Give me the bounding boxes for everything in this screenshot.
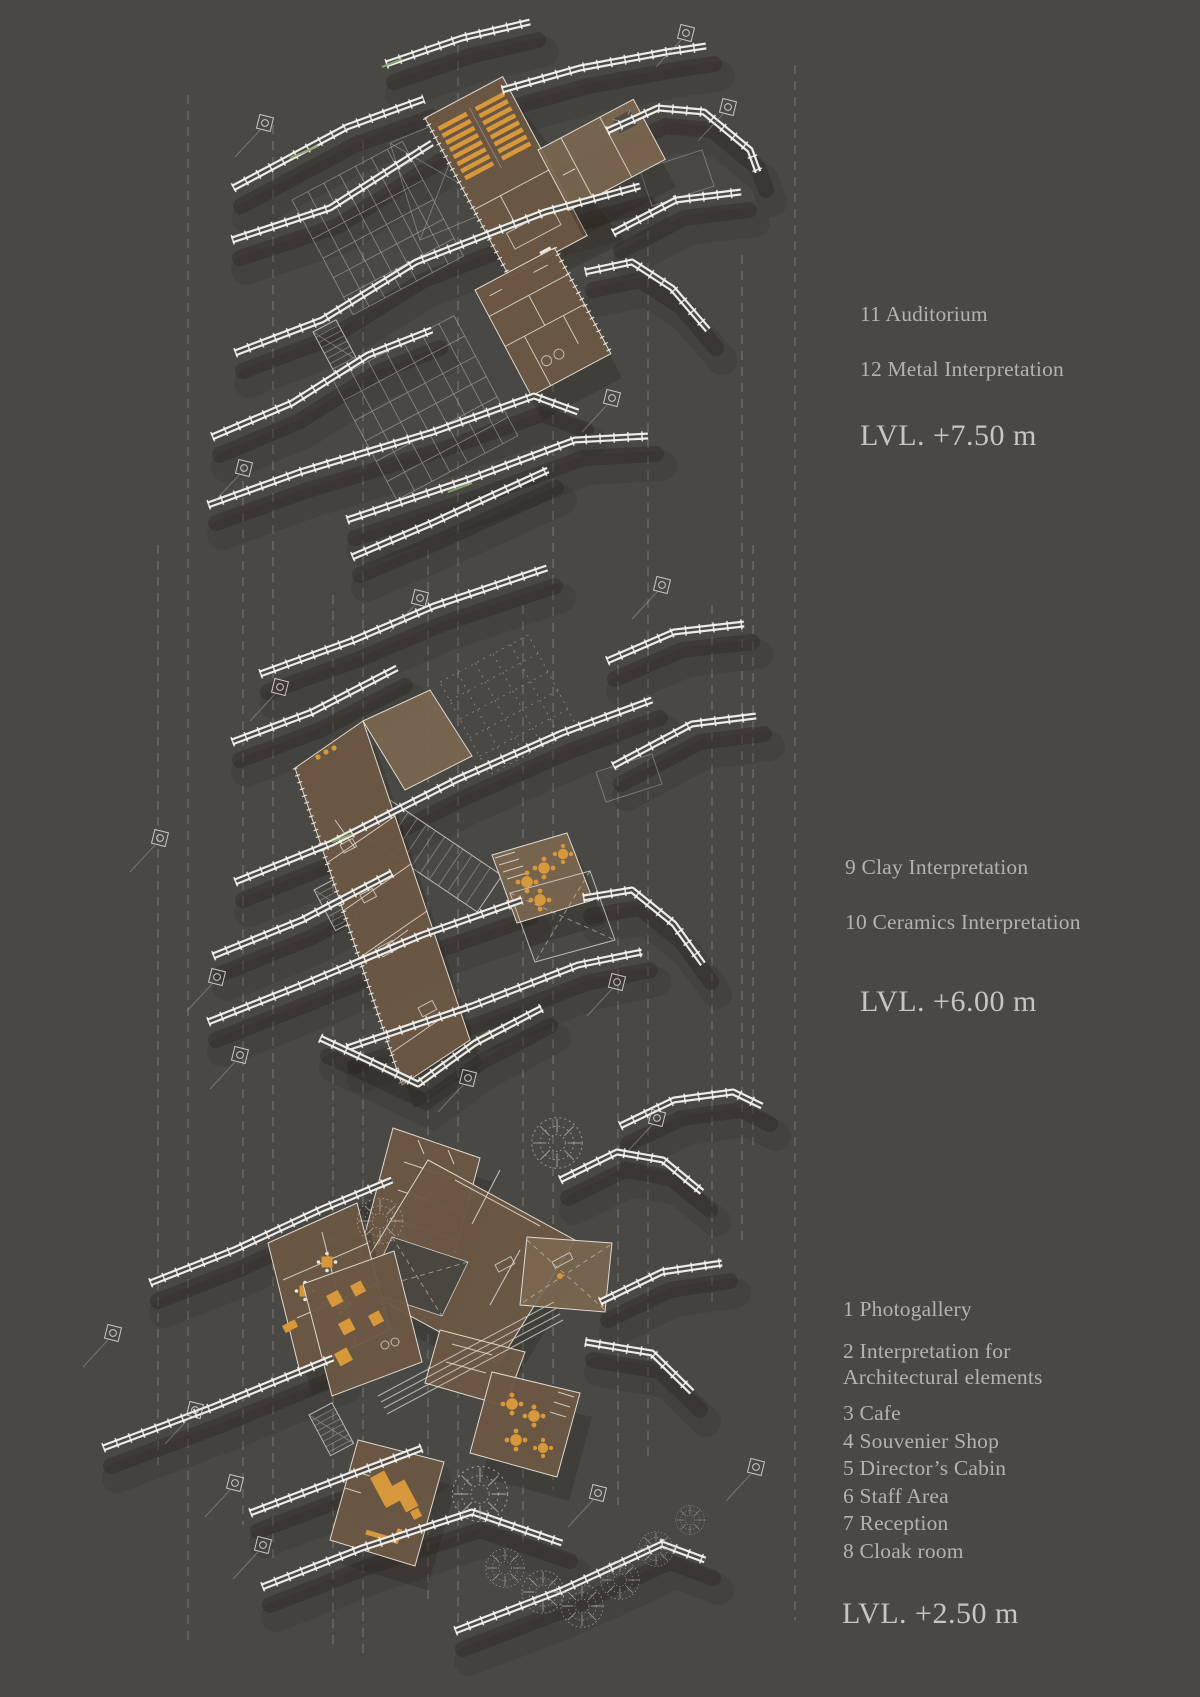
room-label-photogallery: 1 Photogallery xyxy=(843,1297,972,1322)
room-label-directors-cabin: 5 Director’s Cabin xyxy=(843,1456,1006,1481)
plan-drawing xyxy=(0,0,1200,1697)
room-label-ceramics-interpretation: 10 Ceramics Interpretation xyxy=(845,910,1081,935)
level-label-2-50: LVL. +2.50 m xyxy=(842,1597,1019,1631)
room-label-souvenier-shop: 4 Souvenier Shop xyxy=(843,1429,999,1454)
tree-icon xyxy=(676,1506,705,1535)
room-label-interpretation: 2 Interpretation for Architectural eleme… xyxy=(843,1339,1075,1391)
floor-plan-lvl-6-00 xyxy=(130,470,770,1109)
room-label-staff-area: 6 Staff Area xyxy=(843,1484,949,1509)
room-label-reception: 7 Reception xyxy=(843,1511,949,1536)
marker-icon xyxy=(632,577,670,619)
level-label-6-00: LVL. +6.00 m xyxy=(860,985,1037,1019)
marker-icon xyxy=(726,1459,764,1501)
room-label-metal-interpretation: 12 Metal Interpretation xyxy=(860,357,1064,382)
exploded-axonometric-diagram: 11 Auditorium 12 Metal Interpretation LV… xyxy=(0,0,1200,1697)
reception-plate xyxy=(520,1237,612,1312)
marker-icon xyxy=(83,1325,121,1367)
marker-icon xyxy=(235,115,273,157)
level-label-7-50: LVL. +7.50 m xyxy=(860,419,1037,453)
floor-plan-lvl-7-50 xyxy=(208,22,772,550)
floor-plan-lvl-2-50 xyxy=(83,1008,776,1661)
room-label-cloak-room: 8 Cloak room xyxy=(843,1539,964,1564)
marker-icon xyxy=(205,1475,243,1517)
marker-icon xyxy=(568,1485,606,1527)
marker-icon xyxy=(130,830,168,872)
tree-icon xyxy=(532,1118,582,1168)
room-label-cafe: 3 Cafe xyxy=(843,1401,901,1426)
room-label-clay-interpretation: 9 Clay Interpretation xyxy=(845,855,1028,880)
room-label-auditorium: 11 Auditorium xyxy=(860,302,988,327)
